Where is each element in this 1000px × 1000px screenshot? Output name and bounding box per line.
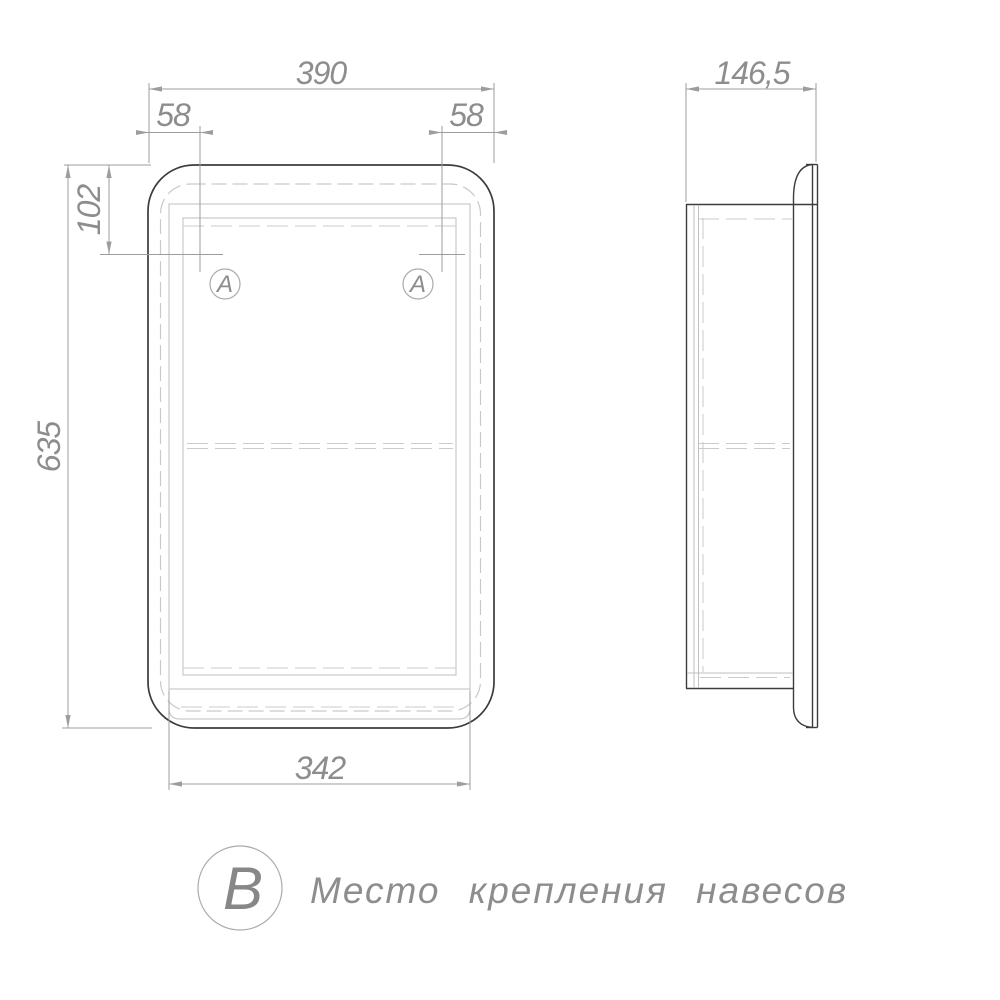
note-row: B Место крепления навесов [198,846,848,930]
balloon-a-right-label: A [408,271,426,298]
balloon-b-label: B [223,855,263,922]
balloon-a-left: A [210,269,240,299]
drawing-canvas: A A 390 58 58 [0,0,1000,1000]
front-view: A A 390 58 58 [31,55,507,790]
dim-58-left-label: 58 [156,97,191,133]
dim-635: 635 [31,165,152,728]
dim-58-right: 58 [429,97,507,135]
side-door-panel [794,165,818,728]
balloon-a-right: A [403,269,433,299]
dim-342-label: 342 [295,750,347,786]
side-view: 146,5 [686,55,818,728]
dim-146-5-label: 146,5 [714,55,790,91]
dim-146-5: 146,5 [686,55,816,202]
technical-drawing-page: A A 390 58 58 [0,0,1000,1000]
dim-102: 102 [64,165,151,255]
note-caption: Место крепления навесов [310,870,848,911]
dim-102-label: 102 [71,184,107,236]
dim-390-label: 390 [296,55,348,91]
dim-342: 342 [169,691,470,790]
front-door-back-hidden-outline [161,184,481,711]
balloon-a-left-label: A [215,271,233,298]
dim-58-right-label: 58 [449,97,484,133]
dim-635-label: 635 [31,421,67,473]
dim-58-left: 58 [136,97,213,135]
front-bottom-trim [169,689,470,719]
